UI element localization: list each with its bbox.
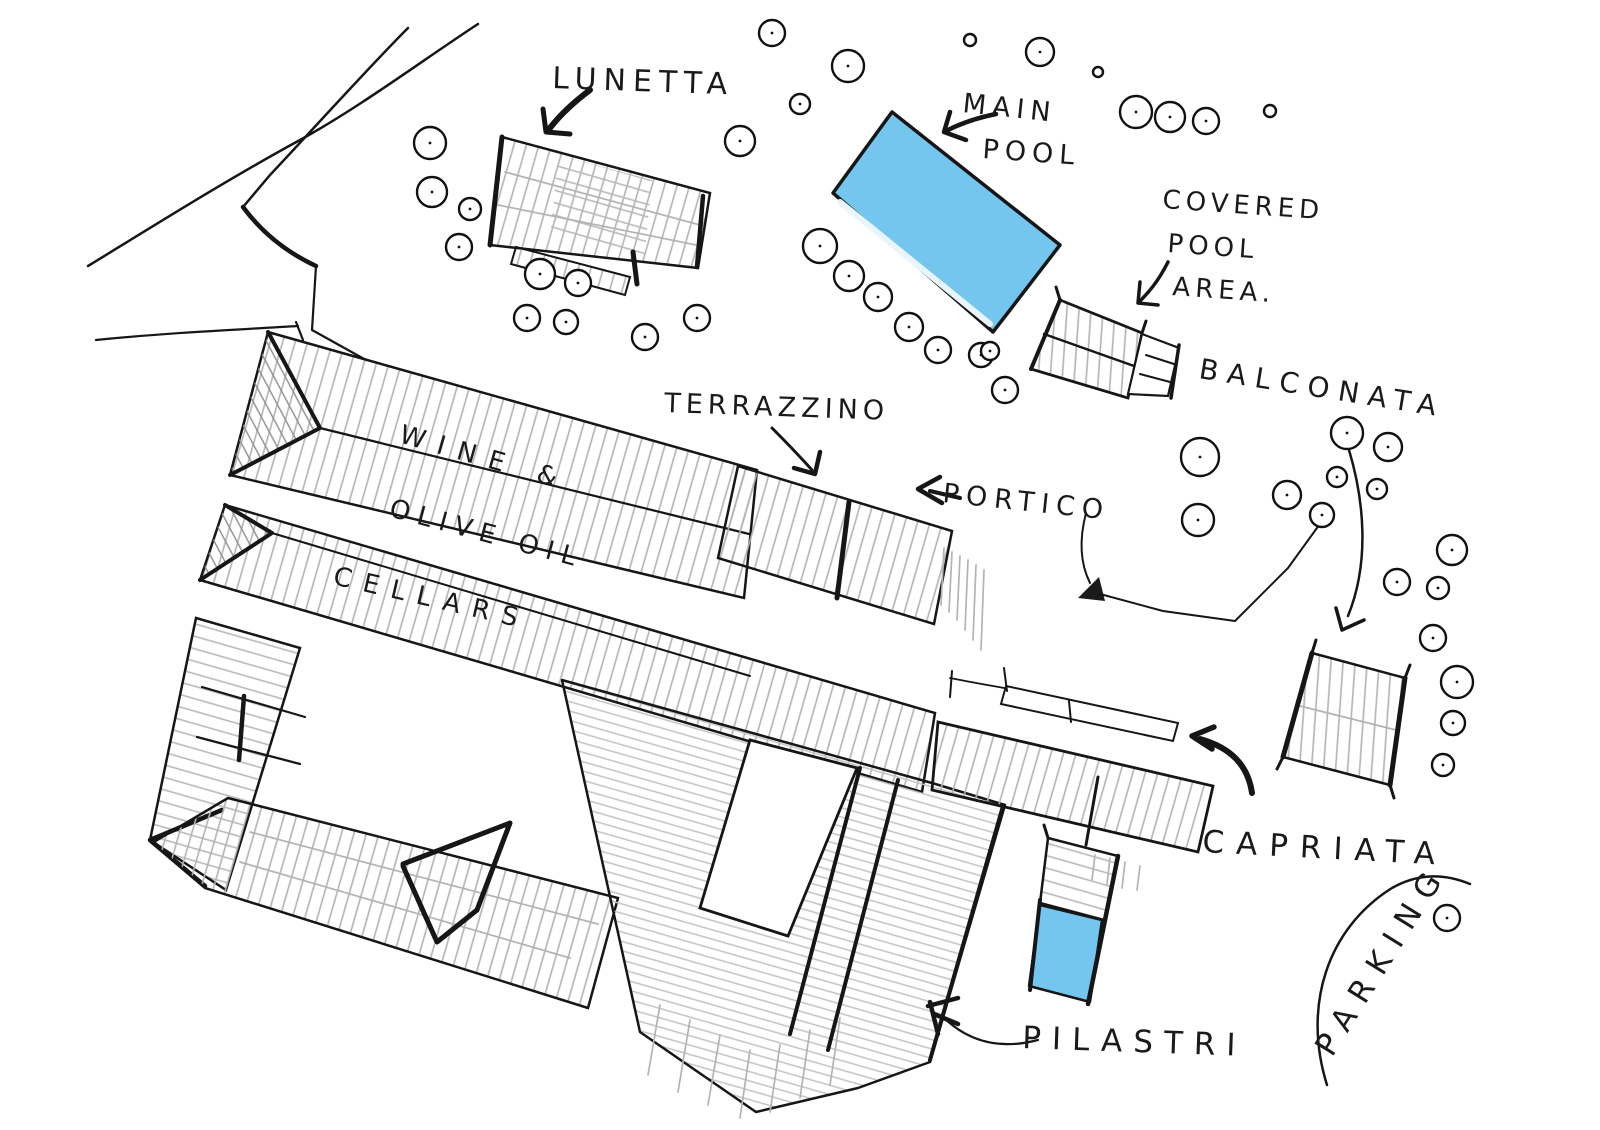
tree-center-dot: [431, 191, 434, 194]
tree-center-dot: [696, 317, 699, 320]
tree-center-dot: [1039, 51, 1042, 54]
tree-center-dot: [1135, 111, 1138, 114]
label-covered-pool-3: AREA.: [1172, 272, 1277, 309]
tree-center-dot: [1442, 764, 1445, 767]
tree-center-dot: [539, 273, 542, 276]
label-main-pool-2: POOL: [982, 134, 1082, 172]
tree-center-dot: [429, 142, 432, 145]
label-covered-pool-2: POOL: [1167, 229, 1260, 265]
tree-center-dot: [1199, 456, 1202, 459]
loggia-strip: [1001, 686, 1178, 741]
tree-center-dot: [847, 65, 850, 68]
label-portico: PORTICO: [941, 478, 1111, 526]
label-capriata: CAPRIATA: [1202, 824, 1448, 873]
label-covered-pool-1: COVERED: [1162, 185, 1326, 226]
lunetta-building: [490, 137, 710, 295]
label-balconata: BALCONATA: [1197, 352, 1448, 423]
tree-center-dot: [848, 275, 851, 278]
tree-center-dot: [937, 349, 940, 352]
tree-center-dot: [565, 321, 568, 324]
tree-center-dot: [1321, 514, 1324, 517]
tree-center-dot: [799, 103, 802, 106]
label-pilastri: PILASTRI: [1022, 1020, 1247, 1064]
tree-center-dot: [577, 282, 580, 285]
tree-center-dot: [1004, 389, 1007, 392]
tree-center-dot: [1286, 494, 1289, 497]
tree-center-dot: [458, 246, 461, 249]
tree-center-dot: [1376, 488, 1379, 491]
tree-center-dot: [469, 208, 472, 211]
tree-icon: [1093, 67, 1103, 77]
tree-center-dot: [908, 326, 911, 329]
site-plan-sketch: LUNETTA MAIN POOL COVERED POOL AREA. BAL…: [0, 0, 1600, 1130]
tree-center-dot: [526, 317, 529, 320]
tree-center-dot: [1396, 581, 1399, 584]
tree-center-dot: [1456, 681, 1459, 684]
tree-center-dot: [1387, 446, 1390, 449]
tree-center-dot: [989, 350, 992, 353]
tree-center-dot: [877, 296, 880, 299]
tree-center-dot: [1197, 519, 1200, 522]
tree-center-dot: [819, 245, 822, 248]
tree-center-dot: [1432, 637, 1435, 640]
tree-center-dot: [1169, 116, 1172, 119]
tree-center-dot: [1452, 722, 1455, 725]
label-main-pool-1: MAIN: [961, 88, 1058, 129]
tree-center-dot: [1451, 549, 1454, 552]
pilastri-building: [1029, 825, 1118, 1004]
tree-center-dot: [644, 336, 647, 339]
tree-center-dot: [739, 140, 742, 143]
covered-pool-arrow: [1138, 262, 1168, 305]
tree-center-dot: [1346, 432, 1349, 435]
label-terrazzino: TERRAZZINO: [663, 388, 890, 427]
tree-center-dot: [771, 32, 774, 35]
tree-center-dot: [1437, 587, 1440, 590]
tree-center-dot: [1446, 917, 1449, 920]
tree-center-dot: [1336, 476, 1339, 479]
bottom-left-wing: [152, 798, 618, 1008]
label-lunetta: LUNETTA: [552, 61, 735, 102]
tree-center-dot: [1205, 120, 1208, 123]
terrace-arrowhead: [1078, 577, 1105, 601]
balconata-building: [1277, 640, 1410, 798]
tree-icon: [964, 34, 976, 46]
terrazzino-arrow: [772, 428, 820, 474]
tree-icon: [1264, 105, 1276, 117]
